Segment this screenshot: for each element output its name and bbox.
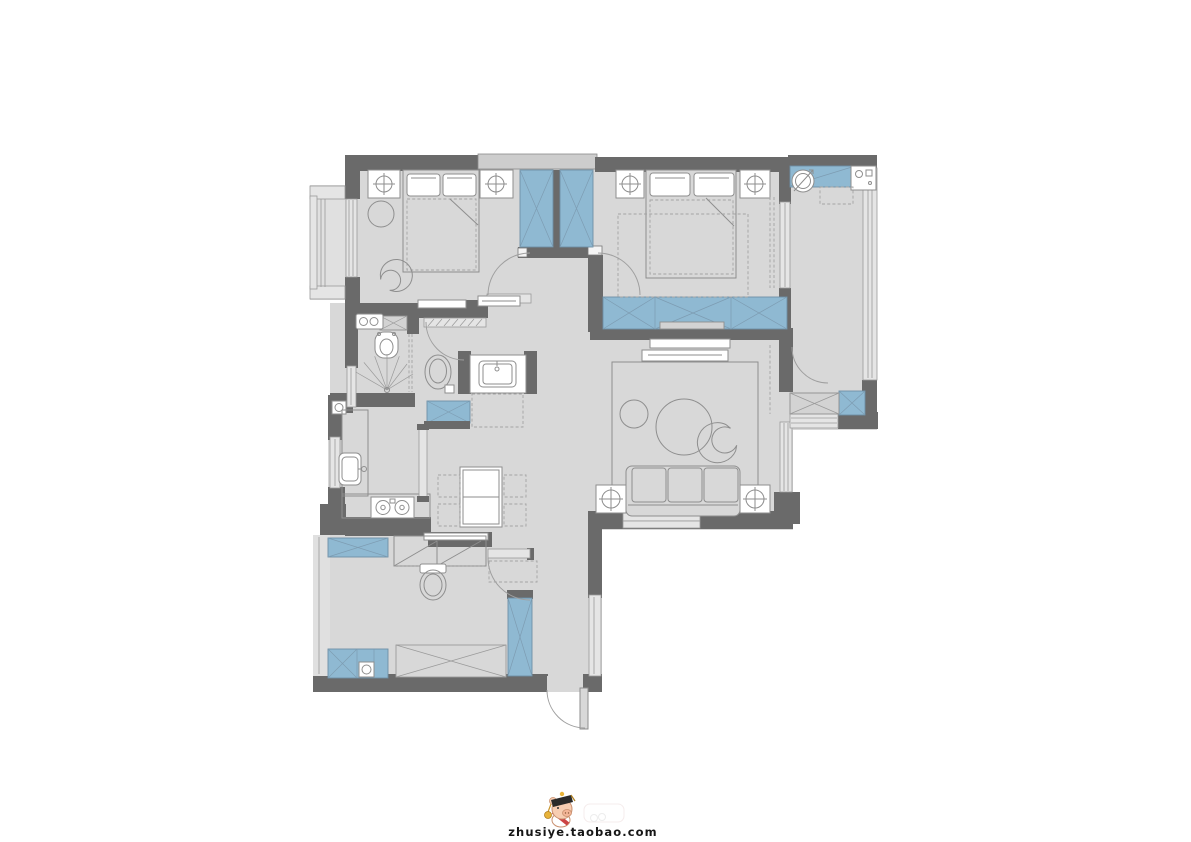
water-heater	[332, 401, 346, 414]
vanity	[470, 355, 526, 393]
utility-door-threshold	[488, 549, 530, 558]
bedroom-left-window	[346, 199, 357, 277]
watermark-url: zhusiye.taobao.com	[508, 825, 657, 839]
tv-in-wardrobe	[660, 322, 724, 329]
sideboard-cabinet	[424, 401, 470, 429]
washing-machine	[851, 166, 876, 190]
tall-cabinet	[508, 598, 532, 676]
living-balcony-window	[780, 422, 792, 492]
double-bed	[403, 170, 479, 272]
bay-window-outer	[310, 196, 317, 289]
wardrobe-left	[520, 170, 553, 247]
wardrobe-right	[560, 170, 593, 247]
beam-over-wardrobes	[478, 154, 597, 169]
floor-plan-canvas: zhusiye.taobao.com	[0, 0, 1191, 842]
double-bed	[646, 170, 736, 278]
corridor-window	[589, 595, 601, 676]
wardrobe-divider-wall	[553, 170, 560, 247]
utility-bottom-cabinet	[328, 649, 388, 678]
balcony-bottom-cabinet	[790, 393, 839, 414]
balcony-south-window	[790, 413, 838, 428]
dining-table	[460, 467, 502, 527]
tv-console	[650, 339, 730, 348]
master-wardrobe-strip	[603, 297, 787, 329]
utility-top-cabinet	[328, 538, 388, 557]
smart-toilet	[375, 332, 398, 358]
pig-mascot-icon	[545, 792, 576, 827]
utility-wide-cabinet	[396, 645, 506, 677]
bathroom-wall-cabinet	[380, 316, 407, 330]
sliding-door-hatch	[424, 318, 486, 327]
entry-threshold	[547, 676, 583, 692]
entry-door-leaf	[580, 688, 588, 729]
double-faucet-basin	[356, 314, 383, 329]
floor-drain	[359, 662, 374, 677]
balcony-corner-cabinet	[839, 391, 865, 415]
gas-hob	[371, 497, 414, 518]
low-bench	[418, 300, 466, 308]
watermark-ghost	[584, 804, 624, 822]
sofa	[626, 466, 740, 516]
watermark: zhusiye.taobao.com	[508, 792, 657, 839]
entry-door-swing	[547, 690, 585, 728]
bathroom-window	[347, 366, 356, 407]
floor-plan-page: zhusiye.taobao.com	[0, 0, 1191, 842]
entry-door	[547, 676, 588, 729]
utility-left-wall	[313, 535, 330, 676]
kitchen-sliding-door	[417, 424, 429, 502]
balcony-east-window	[863, 168, 877, 380]
